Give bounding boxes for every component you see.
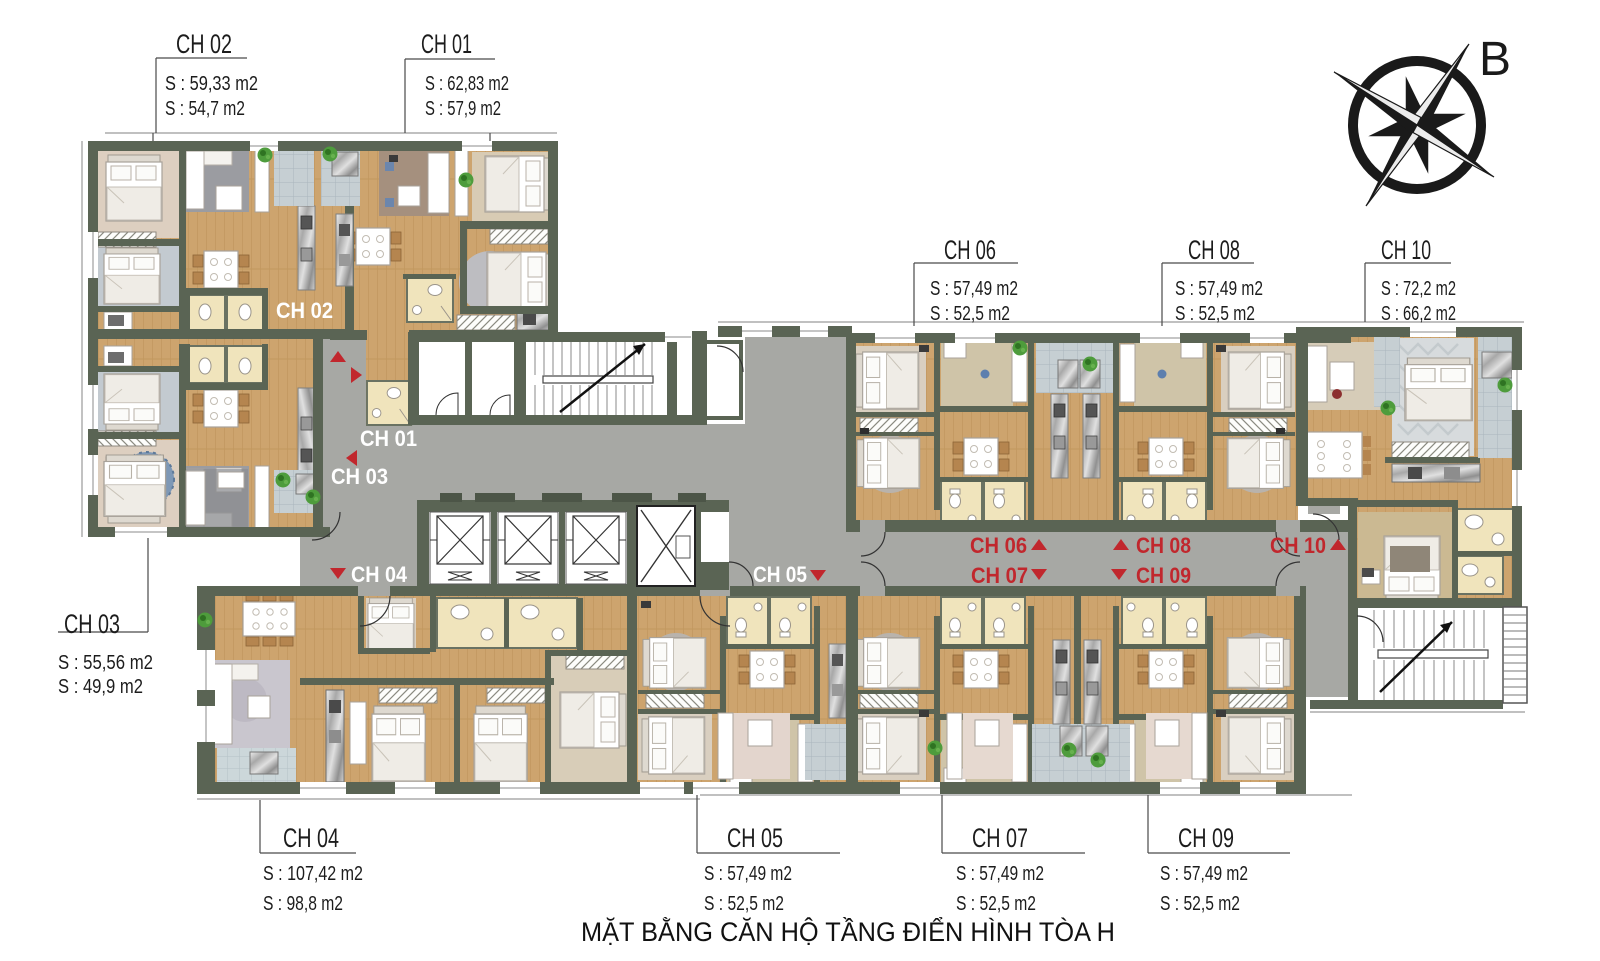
svg-text:CH 10: CH 10	[1270, 533, 1326, 558]
svg-text:S : 72,2 m2: S : 72,2 m2	[1381, 278, 1456, 300]
svg-text:CH 04: CH 04	[351, 562, 408, 587]
svg-text:CH 05: CH 05	[727, 823, 783, 853]
svg-text:S : 57,49 m2: S : 57,49 m2	[704, 863, 792, 885]
svg-text:B: B	[1479, 33, 1511, 86]
svg-text:S : 57,9 m2: S : 57,9 m2	[425, 98, 501, 120]
svg-text:CH 04: CH 04	[283, 823, 339, 853]
svg-text:CH 07: CH 07	[972, 823, 1028, 853]
svg-text:S : 62,83 m2: S : 62,83 m2	[425, 73, 509, 95]
svg-text:S : 57,49 m2: S : 57,49 m2	[1175, 278, 1263, 300]
svg-text:S : 52,5 m2: S : 52,5 m2	[704, 893, 784, 915]
svg-text:S : 107,42 m2: S : 107,42 m2	[263, 863, 363, 885]
svg-text:MẶT BẰNG CĂN HỘ TẦNG ĐIỂN HÌNH: MẶT BẰNG CĂN HỘ TẦNG ĐIỂN HÌNH TÒA H	[581, 916, 1115, 947]
svg-text:S : 57,49 m2: S : 57,49 m2	[956, 863, 1044, 885]
svg-text:S : 66,2 m2: S : 66,2 m2	[1381, 303, 1456, 325]
svg-text:S : 55,56 m2: S : 55,56 m2	[58, 652, 153, 674]
svg-text:CH 01: CH 01	[421, 29, 472, 59]
svg-text:S : 57,49 m2: S : 57,49 m2	[930, 278, 1018, 300]
svg-text:CH 02: CH 02	[176, 29, 232, 59]
svg-text:CH 05: CH 05	[753, 562, 807, 587]
svg-text:S : 54,7 m2: S : 54,7 m2	[165, 98, 245, 120]
svg-text:CH 02: CH 02	[276, 298, 333, 323]
svg-text:S : 59,33 m2: S : 59,33 m2	[165, 73, 258, 95]
svg-text:CH 06: CH 06	[970, 533, 1027, 558]
svg-text:CH 07: CH 07	[971, 563, 1028, 588]
svg-text:CH 09: CH 09	[1136, 563, 1191, 588]
svg-text:S : 52,5 m2: S : 52,5 m2	[930, 303, 1010, 325]
svg-text:CH 03: CH 03	[331, 464, 388, 489]
svg-text:S : 52,5 m2: S : 52,5 m2	[1175, 303, 1255, 325]
svg-text:S : 57,49 m2: S : 57,49 m2	[1160, 863, 1248, 885]
svg-text:CH 08: CH 08	[1136, 533, 1191, 558]
svg-text:CH 09: CH 09	[1178, 823, 1234, 853]
svg-text:CH 01: CH 01	[360, 426, 417, 451]
svg-text:CH 10: CH 10	[1381, 235, 1431, 265]
svg-text:S : 52,5 m2: S : 52,5 m2	[1160, 893, 1240, 915]
svg-text:S : 52,5 m2: S : 52,5 m2	[956, 893, 1036, 915]
svg-text:S : 98,8 m2: S : 98,8 m2	[263, 893, 343, 915]
svg-text:CH 08: CH 08	[1188, 235, 1240, 265]
svg-text:CH 03: CH 03	[64, 609, 120, 639]
svg-text:S : 49,9 m2: S : 49,9 m2	[58, 676, 143, 698]
svg-text:CH 06: CH 06	[944, 235, 996, 265]
